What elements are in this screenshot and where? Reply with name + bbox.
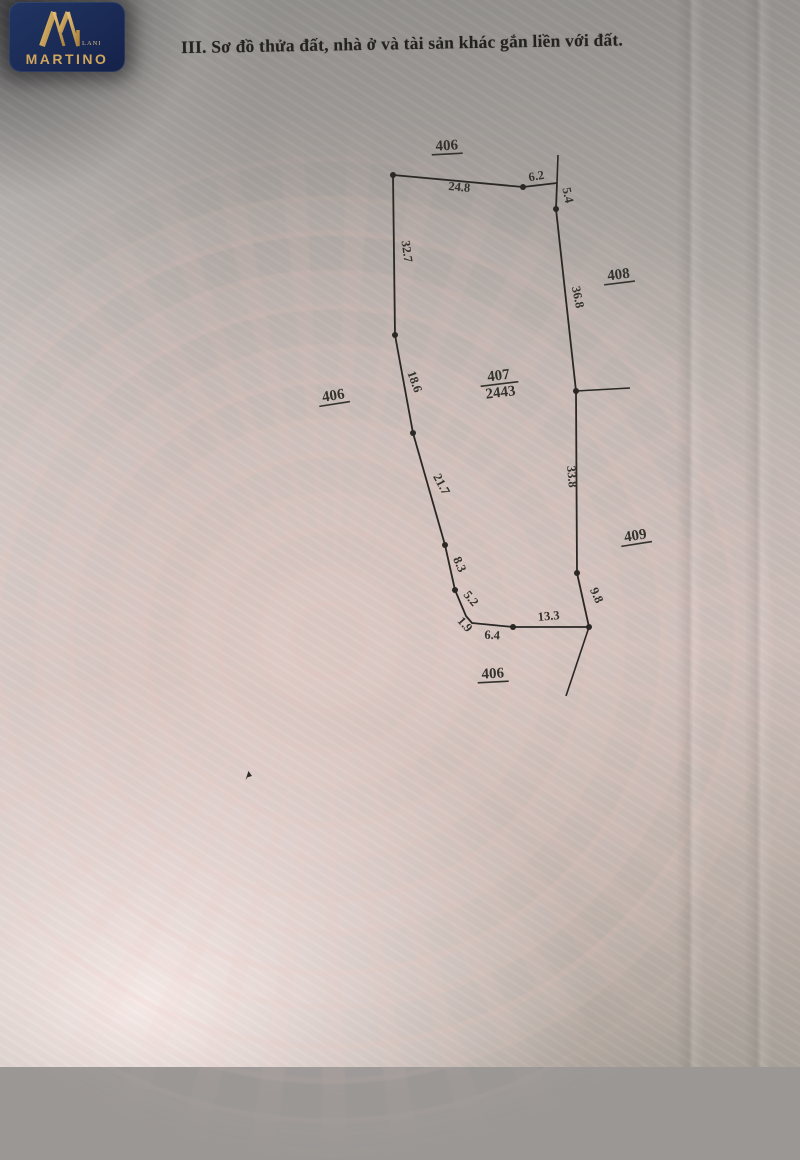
edge-length-label: 5.2 — [461, 588, 482, 609]
boundary-extension-bottom — [566, 627, 589, 696]
edge-length-label: 24.8 — [448, 179, 471, 195]
vertex-dot — [520, 184, 526, 190]
edge-length-label: 33.8 — [564, 465, 580, 488]
martino-land-logo: LAND MARTINO — [9, 2, 125, 72]
edge-length-label: 5.4 — [559, 186, 576, 205]
edge-length-label: 13.3 — [537, 608, 560, 624]
boundary-tick-east — [576, 388, 630, 391]
martino-m-icon: LAND — [34, 6, 100, 50]
parcel-area-text: 2443 — [485, 383, 517, 403]
parcel-diagram: 24.86.25.436.833.89.813.36.41.95.28.321.… — [0, 0, 800, 1067]
edge-length-label: 6.2 — [527, 168, 545, 185]
vertex-dot — [586, 624, 592, 630]
edge-length-label: 1.9 — [455, 614, 476, 635]
logo-brand-text: MARTINO — [26, 52, 109, 66]
adjacent-parcel-label: 406 — [431, 137, 463, 155]
edge-length-label: 8.3 — [450, 554, 469, 574]
edge-length-label: 9.8 — [587, 585, 606, 605]
vertex-dot — [573, 388, 579, 394]
parcel-number-text: 406 — [481, 665, 505, 682]
edge-length-label: 32.7 — [399, 240, 416, 264]
parcel-407-area-fraction: 4072443 — [479, 366, 521, 403]
edge-length-label: 18.6 — [404, 369, 425, 394]
vertex-dot — [442, 542, 448, 548]
adjacent-parcel-label: 408 — [602, 265, 635, 285]
vertex-dot — [510, 624, 516, 630]
adjacent-parcel-label: 409 — [619, 526, 652, 547]
vertex-dot — [392, 332, 398, 338]
logo-land-text: LAND — [82, 40, 100, 47]
edge-length-label: 36.8 — [569, 285, 587, 309]
vertex-dot — [553, 206, 559, 212]
vertex-dot — [410, 430, 416, 436]
vertex-dot — [390, 172, 396, 178]
edge-length-label: 21.7 — [430, 471, 453, 497]
adjacent-parcel-label: 406 — [317, 386, 350, 407]
boundary-408-extension-top — [557, 155, 558, 183]
edge-length-label: 6.4 — [484, 628, 501, 643]
parcel-number-text: 406 — [435, 137, 459, 154]
adjacent-parcel-label: 406 — [477, 665, 509, 683]
vertex-dot — [574, 570, 580, 576]
vertex-dot — [452, 587, 458, 593]
